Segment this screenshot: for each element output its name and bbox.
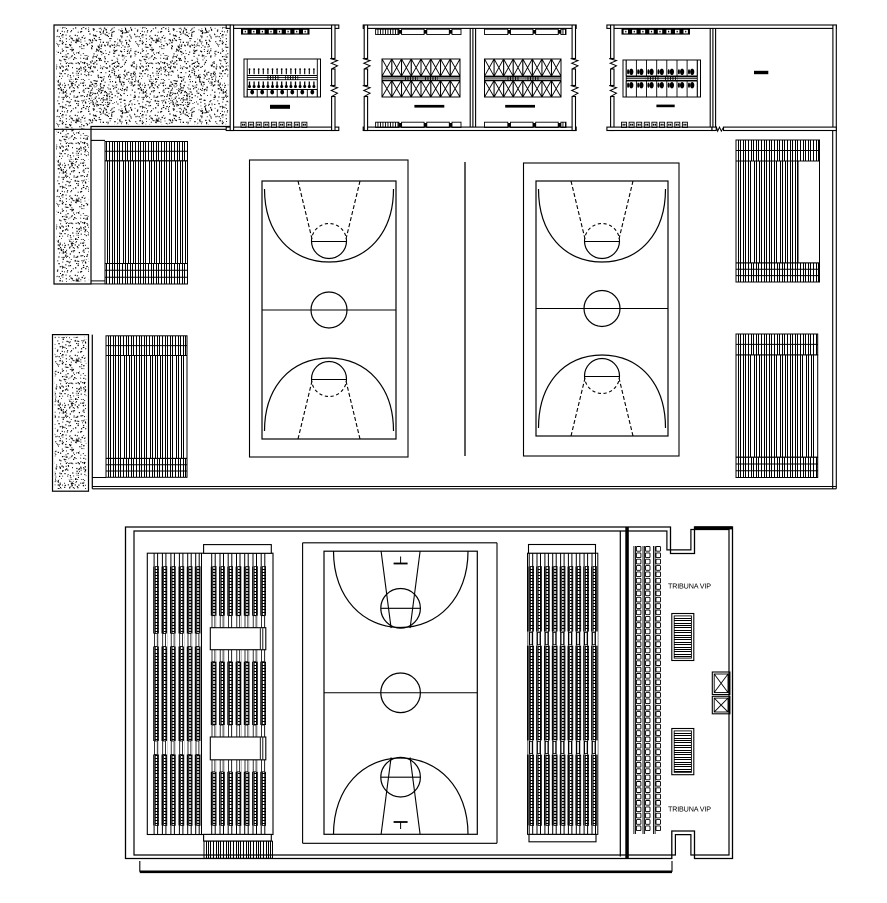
svg-text:TRIBUNA VIP: TRIBUNA VIP xyxy=(668,582,711,591)
svg-text:TRIBUNA VIP: TRIBUNA VIP xyxy=(668,805,711,814)
